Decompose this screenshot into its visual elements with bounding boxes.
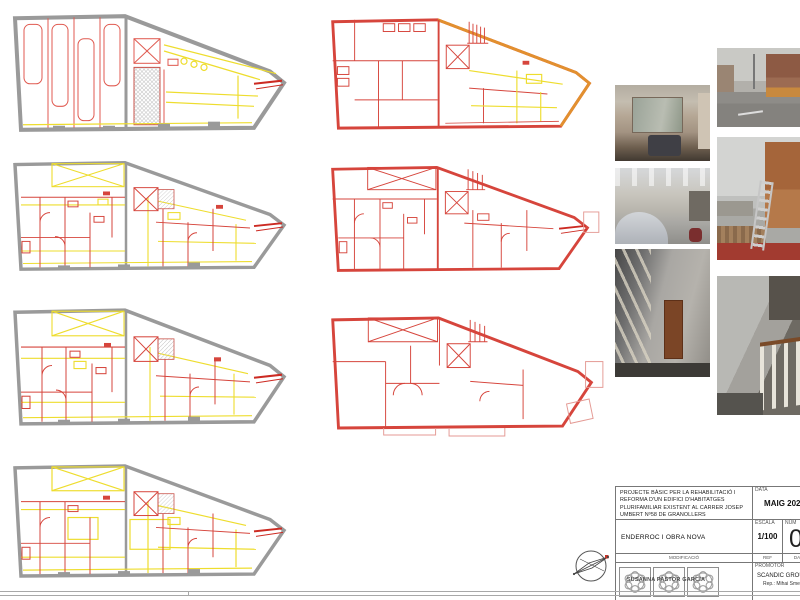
drawing-title: ENDERROC I OBRA NOVA: [616, 520, 752, 541]
photo-detail: [717, 393, 763, 415]
date-cell: DATA MAIG 2023: [753, 487, 800, 519]
ref-label: REF: [753, 556, 782, 561]
scale-label: ESCALA: [753, 520, 782, 526]
floor-plan-first-existing: [8, 155, 293, 275]
floor-plan-attic-new: [326, 310, 600, 434]
photo-detail: [648, 135, 680, 156]
promoter-representative: Rep.: Mihai Smetana: [763, 581, 800, 587]
project-description: PROJECTE BÀSIC PER LA REHABILITACIÓ I RE…: [616, 487, 752, 519]
photo-street-view: [717, 48, 800, 127]
sheet-number-value: 0: [789, 527, 800, 552]
title-block-row-title: ENDERROC I OBRA NOVA ESCALA 1/100 NÚM 0: [616, 520, 800, 554]
photo-detail: [615, 363, 710, 377]
floor-plan-second-existing: [8, 302, 293, 430]
photo-detail: [632, 97, 683, 132]
photo-detail: [615, 168, 710, 186]
photo-office-interior: [615, 85, 710, 161]
photo-detail: [664, 300, 683, 358]
project-description-cell: PROJECTE BÀSIC PER LA REHABILITACIÓ I RE…: [616, 487, 753, 519]
photo-detail: [698, 93, 710, 149]
photo-detail: [738, 111, 763, 116]
date-value: MAIG 2023: [753, 499, 800, 508]
title-block-row-project: PROJECTE BÀSIC PER LA REHABILITACIÓ I RE…: [616, 487, 800, 520]
title-block-row-revision: MODIFICACIÓ REF DATA: [616, 554, 800, 563]
north-arrow-icon: [570, 547, 612, 585]
floor-plan-typical-new: [326, 160, 596, 276]
photo-detail: [689, 228, 702, 242]
floor-plan-ground-existing: [8, 8, 293, 136]
photo-detail: [769, 276, 800, 320]
promoter-label: PROMOTOR: [753, 563, 800, 569]
floor-plan-third-existing: [8, 458, 293, 582]
photo-detail: [717, 65, 734, 92]
photo-stairwell: [717, 276, 800, 415]
photo-hallway-staircase: [615, 249, 710, 377]
sheet-border-line: [0, 595, 800, 596]
date-label: DATA: [753, 487, 800, 493]
drawing-sheet: PROJECTE BÀSIC PER LA REHABILITACIÓ I RE…: [0, 0, 800, 600]
photo-detail: [760, 335, 800, 410]
sheet-number-cell: NÚM 0: [783, 520, 800, 553]
ref-cell: REF: [753, 554, 783, 562]
photo-detail: [615, 249, 651, 377]
sheet-border-line: [0, 591, 800, 592]
drawing-title-cell: ENDERROC I OBRA NOVA: [616, 520, 753, 553]
title-block: PROJECTE BÀSIC PER LA REHABILITACIÓ I RE…: [615, 486, 800, 600]
floor-plan-ground-new: [326, 12, 598, 134]
photo-detail: [766, 54, 800, 97]
photo-garage-interior: [615, 168, 710, 244]
revision-label: MODIFICACIÓ: [616, 556, 752, 561]
promoter-name: SCANDIC GROUP 19: [757, 573, 800, 579]
photo-detail: [689, 191, 710, 221]
sheet-border-tick: [188, 591, 189, 596]
architect-name: SUSANNA PASTOR GARCIA: [618, 577, 714, 583]
photo-rooftop-terrace: [717, 137, 800, 260]
rev-date-cell: DATA: [783, 554, 800, 562]
scale-cell: ESCALA 1/100: [753, 520, 783, 553]
revision-cell: MODIFICACIÓ: [616, 554, 753, 562]
photo-detail: [615, 212, 668, 244]
photo-detail: [753, 54, 755, 89]
rev-date-label: DATA: [783, 556, 800, 561]
scale-value: 1/100: [753, 532, 782, 541]
photo-detail: [717, 201, 753, 216]
